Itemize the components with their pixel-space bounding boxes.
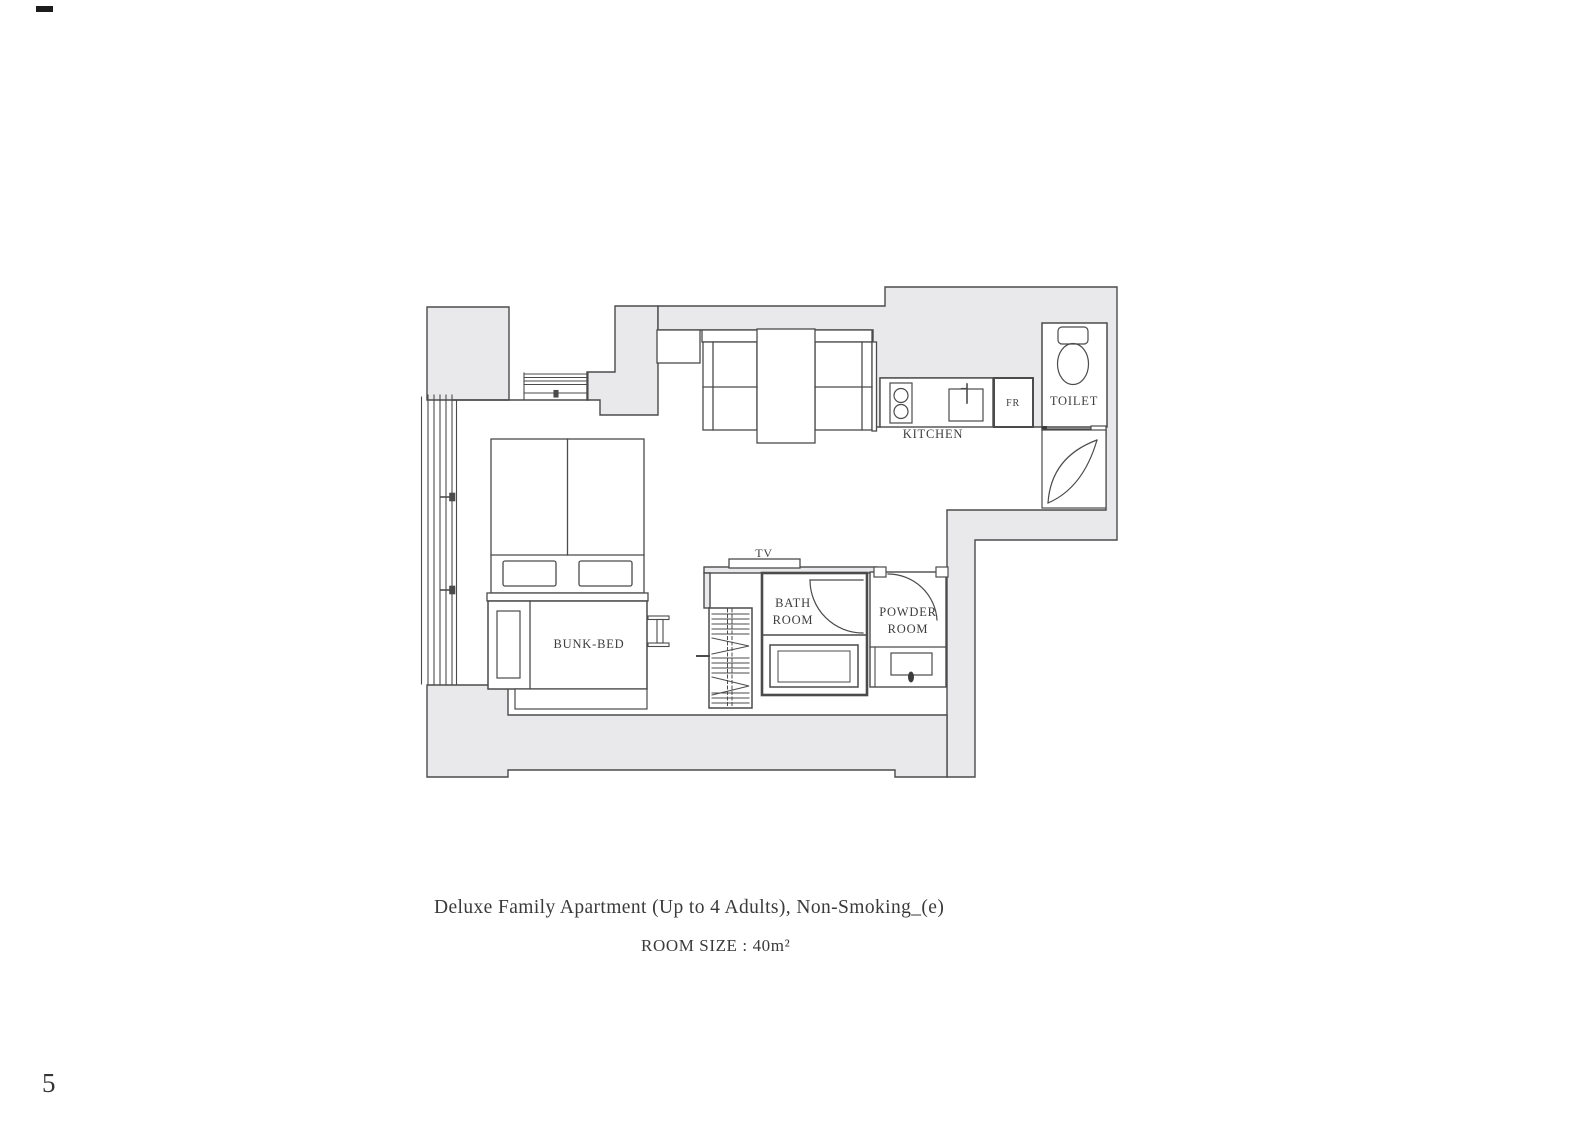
faucet-icon (908, 672, 914, 683)
bunk-bed (488, 601, 669, 709)
floor-plan: KITCHEN FR TOILET TV BATH ROOM POWDER RO… (0, 0, 1587, 1122)
wall-left-chunk (587, 306, 658, 415)
sofa-table (757, 329, 815, 443)
label-bath-1: BATH (775, 596, 811, 610)
page-number: 5 (42, 1068, 56, 1099)
top-dash-mark (36, 6, 53, 12)
left-window (422, 395, 457, 685)
stair-hatch (697, 608, 752, 708)
bunk-step (515, 689, 647, 709)
entrance (1042, 430, 1106, 508)
label-fridge: FR (1006, 398, 1020, 409)
door-post (936, 567, 948, 577)
wall-stub (704, 573, 710, 608)
bath-room (762, 573, 867, 695)
caption-room-size: ROOM SIZE : 40m² (641, 936, 790, 956)
sink-icon (949, 389, 983, 421)
bunk-ladder (497, 611, 520, 678)
door-post (874, 567, 886, 577)
window-latch-icon (554, 391, 558, 398)
sofa-armrest (872, 342, 877, 431)
caption-title: Deluxe Family Apartment (Up to 4 Adults)… (434, 897, 944, 919)
headboard (487, 593, 648, 601)
tv-stand (729, 559, 800, 568)
side-shelf (648, 616, 669, 647)
label-kitchen: KITCHEN (903, 427, 963, 441)
sofa-set (657, 329, 877, 443)
label-toilet: TOILET (1050, 394, 1098, 408)
pillow (503, 561, 556, 586)
top-window (524, 373, 588, 400)
label-tv: TV (755, 546, 773, 560)
twin-bed (487, 439, 648, 601)
sofa-seat-left (703, 342, 757, 430)
wall-top-left-block (427, 307, 509, 400)
pillow (579, 561, 632, 586)
label-bunk-bed: BUNK-BED (554, 637, 625, 651)
wall-bottom-band (427, 685, 947, 777)
label-powder-2: ROOM (888, 622, 929, 636)
floor-plan-page: KITCHEN FR TOILET TV BATH ROOM POWDER RO… (0, 0, 1587, 1122)
sofa-seat-right (815, 342, 872, 430)
sofa-side-table (657, 330, 700, 363)
toilet-room (1042, 323, 1107, 436)
label-bath-2: ROOM (773, 613, 814, 627)
label-powder-1: POWDER (879, 605, 937, 619)
